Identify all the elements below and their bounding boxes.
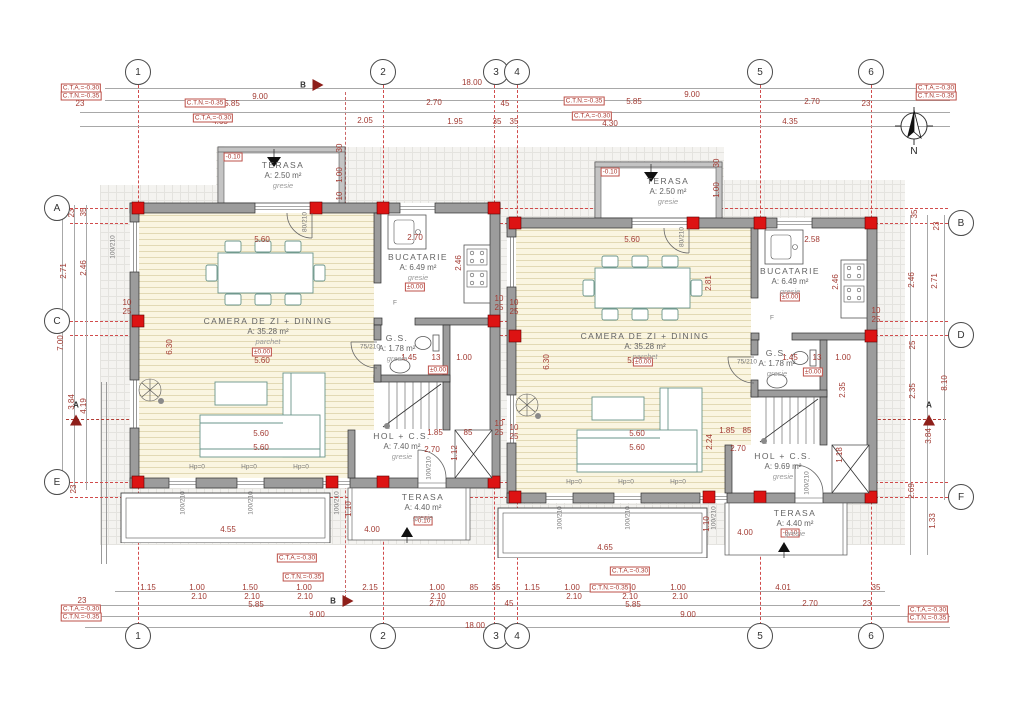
dim-label: 4.55 (220, 526, 236, 534)
level-label: C.T.N.=-0.35 (916, 92, 957, 101)
room-floor-finish: gresie (760, 287, 820, 296)
room-floor-finish: gresie (379, 354, 416, 363)
room-label: G.S.A: 1.78 m²gresie (759, 348, 796, 378)
dim-label: 2.15 (362, 584, 378, 592)
room-area: A: 4.40 m² (402, 503, 444, 512)
dim-label: 4.30 (602, 120, 618, 128)
dim-label: 75/210 (360, 344, 380, 351)
dim-label: 1.00 (456, 354, 472, 362)
grid-bubble-D: D (948, 322, 974, 348)
dim-label: 4.35 (782, 118, 798, 126)
dim-label: 100/210 (711, 506, 718, 530)
room-floor-finish: gresie (402, 513, 444, 522)
dim-label: 1.00 (564, 584, 580, 592)
room-name: G.S. (759, 348, 796, 358)
dim-label: 35 (492, 584, 501, 592)
dim-label: F (770, 315, 774, 322)
dim-label: 35 (80, 208, 88, 217)
dim-label: 45 (501, 100, 510, 108)
dim-label: 9.00 (680, 611, 696, 619)
room-area: A: 6.49 m² (388, 263, 448, 272)
dim-label: 3.84 (68, 394, 76, 410)
grid-bubble-6: 6 (858, 623, 884, 649)
room-area: A: 1.78 m² (759, 359, 796, 368)
room-name: CAMERA DE ZI + DINING (581, 331, 710, 341)
dim-label: 2.81 (705, 275, 713, 291)
room-label: TERASAA: 2.50 m²gresie (262, 160, 304, 190)
grid-bubble-A: A (44, 195, 70, 221)
dim-label: 35 (493, 118, 502, 126)
room-area: A: 6.49 m² (760, 277, 820, 286)
level-label: C.T.A.=-0.30 (277, 554, 317, 563)
dim-label: 10 (872, 307, 881, 315)
dim-label: 9.00 (684, 91, 700, 99)
grid-bubble-2: 2 (370, 623, 396, 649)
dim-label: 100/210 (557, 506, 564, 530)
level-label: C.T.N.=-0.35 (61, 613, 102, 622)
dim-label: 85 (743, 427, 752, 435)
dim-label: 25 (495, 429, 504, 437)
room-name: TERASA (402, 492, 444, 502)
room-floor-finish: gresie (754, 472, 811, 481)
dim-label: 2.46 (455, 255, 463, 271)
dim-label: 1.00 (296, 584, 312, 592)
dim-label: 35 (510, 118, 519, 126)
grid-bubble-F: F (948, 484, 974, 510)
dim-label: 1.00 (336, 167, 344, 183)
dim-label: 100/210 (110, 235, 117, 259)
level-label: C.T.N.=-0.35 (908, 614, 949, 623)
room-area: A: 4.40 m² (774, 519, 816, 528)
dim-label: 100/210 (180, 491, 187, 515)
dim-label: 6.30 (543, 354, 551, 370)
room-label: BUCATARIEA: 6.49 m²gresie (760, 266, 820, 296)
dim-label: 100/210 (248, 491, 255, 515)
dim-label: 2.35 (839, 382, 847, 398)
dim-label: 5.60 (254, 236, 270, 244)
dim-label: Hp=0 (670, 479, 686, 486)
grid-bubble-1: 1 (125, 623, 151, 649)
room-name: HOL + C.S. (373, 431, 430, 441)
dim-label: 2.70 (426, 99, 442, 107)
dim-label: 10 (123, 299, 132, 307)
dim-label: 2.58 (804, 236, 820, 244)
dim-label: Hp=0 (566, 479, 582, 486)
dim-label: 100/210 (625, 506, 632, 530)
dim-label: 6.30 (166, 339, 174, 355)
dim-label: 23 (933, 222, 941, 231)
room-area: A: 2.50 m² (647, 187, 689, 196)
room-label: TERASAA: 4.40 m²gresie (402, 492, 444, 522)
level-label: C.T.A.=-0.30 (572, 112, 612, 121)
dim-label: 80/210 (679, 227, 686, 247)
room-area: A: 9.69 m² (754, 462, 811, 471)
dim-label: 5.60 (253, 444, 269, 452)
dim-label: 3.84 (925, 428, 933, 444)
room-area: A: 1.78 m² (379, 344, 416, 353)
dim-label: 5.60 (629, 444, 645, 452)
dim-label: 75/210 (737, 359, 757, 366)
dim-label: 4.19 (80, 398, 88, 414)
dim-label: 2.46 (80, 260, 88, 276)
dim-label: 13 (432, 354, 441, 362)
dim-label: 13 (813, 354, 822, 362)
annotation-layer: 18.009.009.00235.852.70455.852.70234.652… (0, 0, 1018, 720)
room-label: TERASAA: 4.40 m²gresie (774, 508, 816, 538)
dim-label: 1.33 (929, 513, 937, 529)
dim-label: 5.85 (248, 601, 264, 609)
dim-label: 5.60 (253, 430, 269, 438)
dim-label: 80/210 (302, 212, 309, 232)
dim-label: 35 (872, 584, 881, 592)
floor-plan-canvas: A A B B N (0, 0, 1018, 720)
dim-label: 5.85 (626, 98, 642, 106)
dim-label: 23 (76, 100, 85, 108)
dim-label: 35 (911, 210, 919, 219)
room-label: CAMERA DE ZI + DININGA: 35.28 m²parchet (581, 331, 710, 361)
room-name: BUCATARIE (388, 252, 448, 262)
room-label: CAMERA DE ZI + DININGA: 35.28 m²parchet (204, 316, 333, 346)
dim-label: 10 (336, 192, 344, 201)
dim-label: 8.10 (941, 375, 949, 391)
dim-label: 2.70 (730, 445, 746, 453)
level-label: C.T.N.=-0.35 (590, 584, 631, 593)
dim-label: 2.71 (60, 263, 68, 279)
room-label: HOL + C.S.A: 9.69 m²gresie (754, 451, 811, 481)
dim-label: 23 (70, 485, 78, 494)
dim-label: 1.10 (345, 501, 353, 517)
dim-label: 9.00 (309, 611, 325, 619)
dim-label: 1.00 (670, 584, 686, 592)
dim-label: 10 (495, 295, 504, 303)
grid-bubble-6: 6 (858, 59, 884, 85)
room-name: BUCATARIE (760, 266, 820, 276)
dim-label: Hp=0 (618, 479, 634, 486)
dim-label: Hp=0 (189, 464, 205, 471)
grid-bubble-5: 5 (747, 59, 773, 85)
dim-label: 1.95 (447, 118, 463, 126)
dim-label: 25 (909, 341, 917, 350)
dim-label: 1.85 (719, 427, 735, 435)
room-name: HOL + C.S. (754, 451, 811, 461)
dim-label: 2.70 (407, 234, 423, 242)
room-name: TERASA (647, 176, 689, 186)
dim-label: 1.15 (524, 584, 540, 592)
room-floor-finish: gresie (262, 181, 304, 190)
level-label: C.T.N.=-0.35 (564, 97, 605, 106)
dim-label: 4.00 (737, 529, 753, 537)
dim-label: 1.18 (836, 447, 844, 463)
dim-label: 2.10 (191, 593, 207, 601)
room-area: A: 35.28 m² (581, 342, 710, 351)
level-label: -0.10 (601, 168, 620, 177)
dim-label: 18.00 (465, 622, 485, 630)
dim-label: Hp=0 (241, 464, 257, 471)
room-name: CAMERA DE ZI + DINING (204, 316, 333, 326)
dim-label: 25 (123, 308, 132, 316)
dim-label: 25 (872, 316, 881, 324)
dim-label: 2.69 (908, 483, 916, 499)
dim-label: 1.12 (451, 445, 459, 461)
dim-label: 25 (495, 304, 504, 312)
level-label: C.T.A.=-0.30 (193, 114, 233, 123)
room-floor-finish: gresie (774, 529, 816, 538)
dim-label: 4.65 (597, 544, 613, 552)
grid-bubble-C: C (44, 308, 70, 334)
dim-label: F (393, 300, 397, 307)
room-floor-finish: parchet (204, 337, 333, 346)
dim-label: 2.35 (909, 383, 917, 399)
dim-label: 10 (510, 299, 519, 307)
dim-label: 1.15 (140, 584, 156, 592)
level-label: C.T.N.=-0.35 (283, 573, 324, 582)
grid-bubble-4: 4 (504, 623, 530, 649)
dim-label: 30 (713, 159, 721, 168)
room-area: A: 2.50 m² (262, 171, 304, 180)
dim-label: 1.00 (835, 354, 851, 362)
room-floor-finish: parchet (581, 352, 710, 361)
level-label: ±0.00 (405, 283, 425, 292)
dim-label: 4.01 (775, 584, 791, 592)
dim-label: 2.70 (804, 98, 820, 106)
dim-label: 9.00 (252, 93, 268, 101)
dim-label: 85 (464, 429, 473, 437)
dim-label: 2.10 (566, 593, 582, 601)
dim-label: 10 (510, 424, 519, 432)
room-area: A: 35.28 m² (204, 327, 333, 336)
dim-label: 5.85 (625, 601, 641, 609)
room-floor-finish: gresie (647, 197, 689, 206)
dim-label: 1.50 (242, 584, 258, 592)
dim-label: 30 (336, 144, 344, 153)
dim-label: 5.60 (629, 430, 645, 438)
grid-bubble-2: 2 (370, 59, 396, 85)
dim-label: 2.70 (429, 600, 445, 608)
dim-label: 45 (505, 600, 514, 608)
room-name: TERASA (774, 508, 816, 518)
dim-label: 2.10 (297, 593, 313, 601)
dim-label: 2.10 (672, 593, 688, 601)
grid-bubble-E: E (44, 469, 70, 495)
dim-label: 25 (510, 308, 519, 316)
grid-bubble-1: 1 (125, 59, 151, 85)
dim-label: 2.71 (931, 273, 939, 289)
dim-label: 5.60 (254, 357, 270, 365)
room-name: TERASA (262, 160, 304, 170)
room-area: A: 7.40 m² (373, 442, 430, 451)
room-label: BUCATARIEA: 6.49 m²gresie (388, 252, 448, 282)
dim-label: 5.85 (224, 100, 240, 108)
level-label: ±0.00 (428, 366, 448, 375)
room-label: G.S.A: 1.78 m²gresie (379, 333, 416, 363)
room-floor-finish: gresie (759, 369, 796, 378)
dim-label: 2.24 (706, 434, 714, 450)
level-label: C.T.A.=-0.30 (610, 567, 650, 576)
dim-label: 2.46 (908, 272, 916, 288)
dim-label: 2.05 (357, 117, 373, 125)
level-label: C.T.N.=-0.35 (61, 92, 102, 101)
dim-label: 5.60 (624, 236, 640, 244)
dim-label: 10 (495, 420, 504, 428)
dim-label: 1.00 (429, 584, 445, 592)
room-label: TERASAA: 2.50 m²gresie (647, 176, 689, 206)
room-label: HOL + C.S.A: 7.40 m²gresie (373, 431, 430, 461)
dim-label: 1.00 (189, 584, 205, 592)
grid-bubble-4: 4 (504, 59, 530, 85)
dim-label: 1.00 (713, 182, 721, 198)
dim-label: 100/210 (334, 491, 341, 515)
room-name: G.S. (379, 333, 416, 343)
room-floor-finish: gresie (373, 452, 430, 461)
dim-label: 23 (862, 100, 871, 108)
grid-bubble-B: B (948, 210, 974, 236)
dim-label: 85 (470, 584, 479, 592)
dim-label: 18.00 (462, 79, 482, 87)
level-label: C.T.N.=-0.35 (185, 99, 226, 108)
dim-label: 2.46 (832, 274, 840, 290)
dim-label: 23 (863, 600, 872, 608)
dim-label: 25 (510, 433, 519, 441)
level-label: ±0.00 (803, 368, 823, 377)
level-label: ±0.00 (252, 348, 272, 357)
dim-label: 4.00 (364, 526, 380, 534)
dim-label: Hp=0 (293, 464, 309, 471)
room-floor-finish: gresie (388, 273, 448, 282)
level-label: -0.10 (224, 153, 243, 162)
dim-label: 2.70 (802, 600, 818, 608)
dim-label: 7.00 (57, 335, 65, 351)
grid-bubble-5: 5 (747, 623, 773, 649)
